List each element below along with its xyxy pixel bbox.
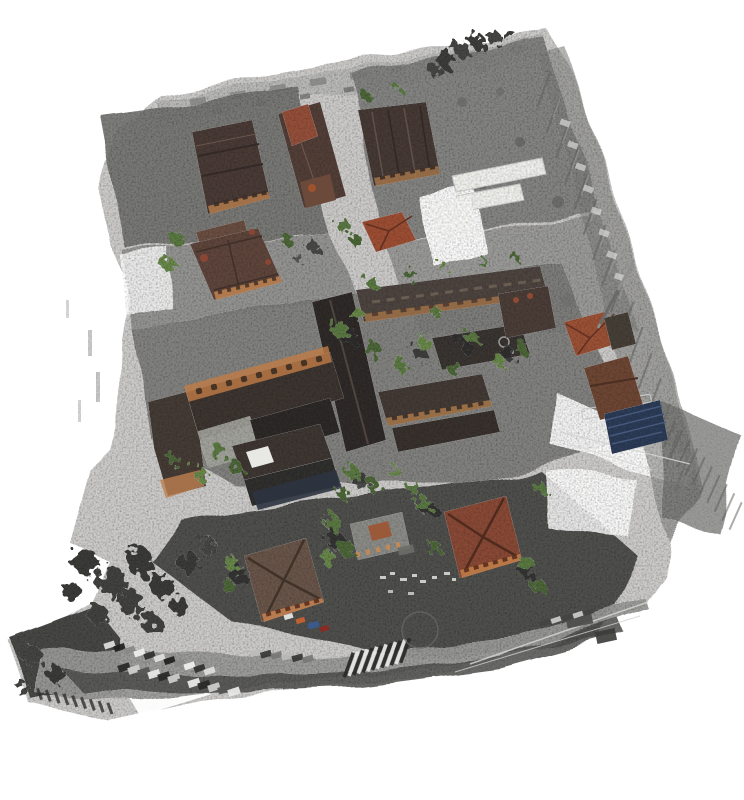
gray-tree	[306, 240, 318, 252]
green-tree	[350, 234, 362, 246]
gray-tree	[454, 42, 470, 58]
complex-south-windows	[446, 407, 452, 412]
gray-tree	[177, 551, 199, 573]
green-tree	[168, 454, 180, 466]
sparse-left-dash	[66, 300, 69, 318]
green-tree	[367, 479, 381, 493]
gray-tree	[470, 34, 486, 50]
green-tree	[431, 307, 441, 317]
green-tree	[447, 361, 461, 375]
paint-mark	[390, 572, 395, 575]
green-tree	[388, 466, 400, 478]
paint-mark	[412, 574, 417, 577]
paint-mark	[408, 592, 414, 595]
paint-mark	[420, 580, 426, 583]
green-tree	[210, 444, 226, 460]
green-tree	[417, 337, 431, 351]
green-tree	[509, 251, 519, 261]
complex-north-windows	[414, 306, 420, 311]
sparse-left-dash	[78, 400, 81, 422]
palace-windows	[254, 281, 259, 286]
green-tree	[229, 461, 243, 475]
green-tree	[477, 257, 487, 267]
gray-tree	[88, 604, 108, 624]
palace-red-accent	[249, 229, 255, 235]
warehouse-2-turret	[308, 184, 316, 192]
green-tree	[338, 540, 354, 556]
gray-tree	[73, 549, 99, 575]
court-spot	[561, 293, 575, 307]
green-tree	[366, 342, 382, 358]
paint-mark	[432, 576, 437, 579]
gray-tree	[47, 665, 65, 683]
complex-south-windows	[413, 412, 419, 417]
palace-windows	[245, 283, 250, 288]
sparse-left-dash	[96, 372, 100, 402]
green-tree	[345, 465, 359, 479]
gray-tree	[126, 548, 154, 576]
complex-south-windows	[467, 403, 473, 408]
green-tree	[161, 257, 175, 271]
green-tree	[466, 332, 478, 344]
green-tree	[324, 514, 340, 530]
white-building-patch	[430, 196, 478, 244]
paint-mark	[444, 572, 450, 575]
palace-red-accent	[265, 259, 271, 265]
court-spot	[496, 88, 504, 96]
gray-tree	[502, 28, 514, 40]
white-notch	[120, 248, 172, 315]
gray-tree	[293, 253, 303, 263]
gray-tree	[429, 65, 443, 79]
complex-north-windows	[443, 302, 449, 307]
green-tree	[427, 541, 441, 555]
white-notch	[545, 470, 635, 538]
aerial-point-cloud-render	[0, 0, 744, 800]
green-tree	[321, 551, 335, 565]
gray-tree	[487, 31, 501, 45]
palace-windows	[227, 287, 232, 292]
gray-tree	[117, 589, 143, 615]
green-tree	[494, 356, 506, 368]
complex-south-windows	[435, 408, 441, 413]
east-wing-red	[513, 297, 519, 303]
green-tree	[225, 557, 239, 571]
gray-tree	[171, 597, 189, 615]
green-tree	[394, 86, 402, 94]
gray-tree	[140, 612, 160, 632]
green-tree	[337, 219, 351, 233]
paint-mark	[452, 578, 456, 581]
green-tree	[518, 556, 534, 572]
complex-north-windows	[372, 312, 378, 317]
point-cloud-viewport	[0, 0, 744, 800]
green-tree	[170, 232, 186, 248]
complex-south-windows	[457, 405, 463, 410]
green-tree	[516, 342, 528, 354]
green-tree	[393, 357, 407, 371]
complex-south-windows	[392, 416, 398, 421]
green-tree	[531, 579, 545, 593]
complex-south-windows	[403, 414, 409, 419]
paint-mark	[388, 590, 393, 593]
green-tree	[408, 482, 420, 494]
green-tree	[222, 580, 234, 592]
green-tree	[366, 276, 378, 288]
paint-mark	[400, 578, 407, 581]
green-tree	[349, 307, 363, 321]
gray-tree	[199, 537, 217, 555]
palace-windows	[218, 290, 223, 295]
green-tree	[332, 322, 348, 338]
palace-windows	[236, 285, 241, 290]
court-spot	[457, 97, 467, 107]
complex-south-windows	[478, 401, 484, 406]
court-spot	[515, 137, 525, 147]
edge-streaks-outer	[729, 502, 743, 530]
east-wing-red	[527, 293, 533, 299]
complex-north-windows	[471, 298, 477, 303]
complex-north-windows	[386, 310, 392, 315]
green-tree	[282, 234, 294, 246]
palace-red-accent	[200, 254, 208, 262]
complex-south-windows	[424, 410, 430, 415]
green-tree	[361, 91, 371, 101]
palace-windows	[272, 276, 277, 281]
green-tree	[439, 263, 449, 273]
complex-north-windows	[400, 308, 406, 313]
gray-tree	[22, 646, 42, 666]
gray-tree	[150, 574, 174, 598]
scene-root	[8, 28, 743, 720]
palace-windows	[263, 279, 268, 284]
green-tree	[404, 268, 416, 280]
green-tree	[534, 482, 546, 494]
green-tree	[338, 488, 350, 500]
complex-north-windows	[485, 296, 491, 301]
green-tree	[193, 467, 207, 481]
complex-north-windows	[457, 300, 463, 305]
green-tree	[414, 496, 430, 512]
gray-tree	[17, 683, 31, 697]
sparse-left-dash	[88, 330, 92, 356]
gray-tree	[63, 583, 81, 601]
court-spot	[552, 196, 564, 208]
paint-mark	[380, 576, 386, 579]
